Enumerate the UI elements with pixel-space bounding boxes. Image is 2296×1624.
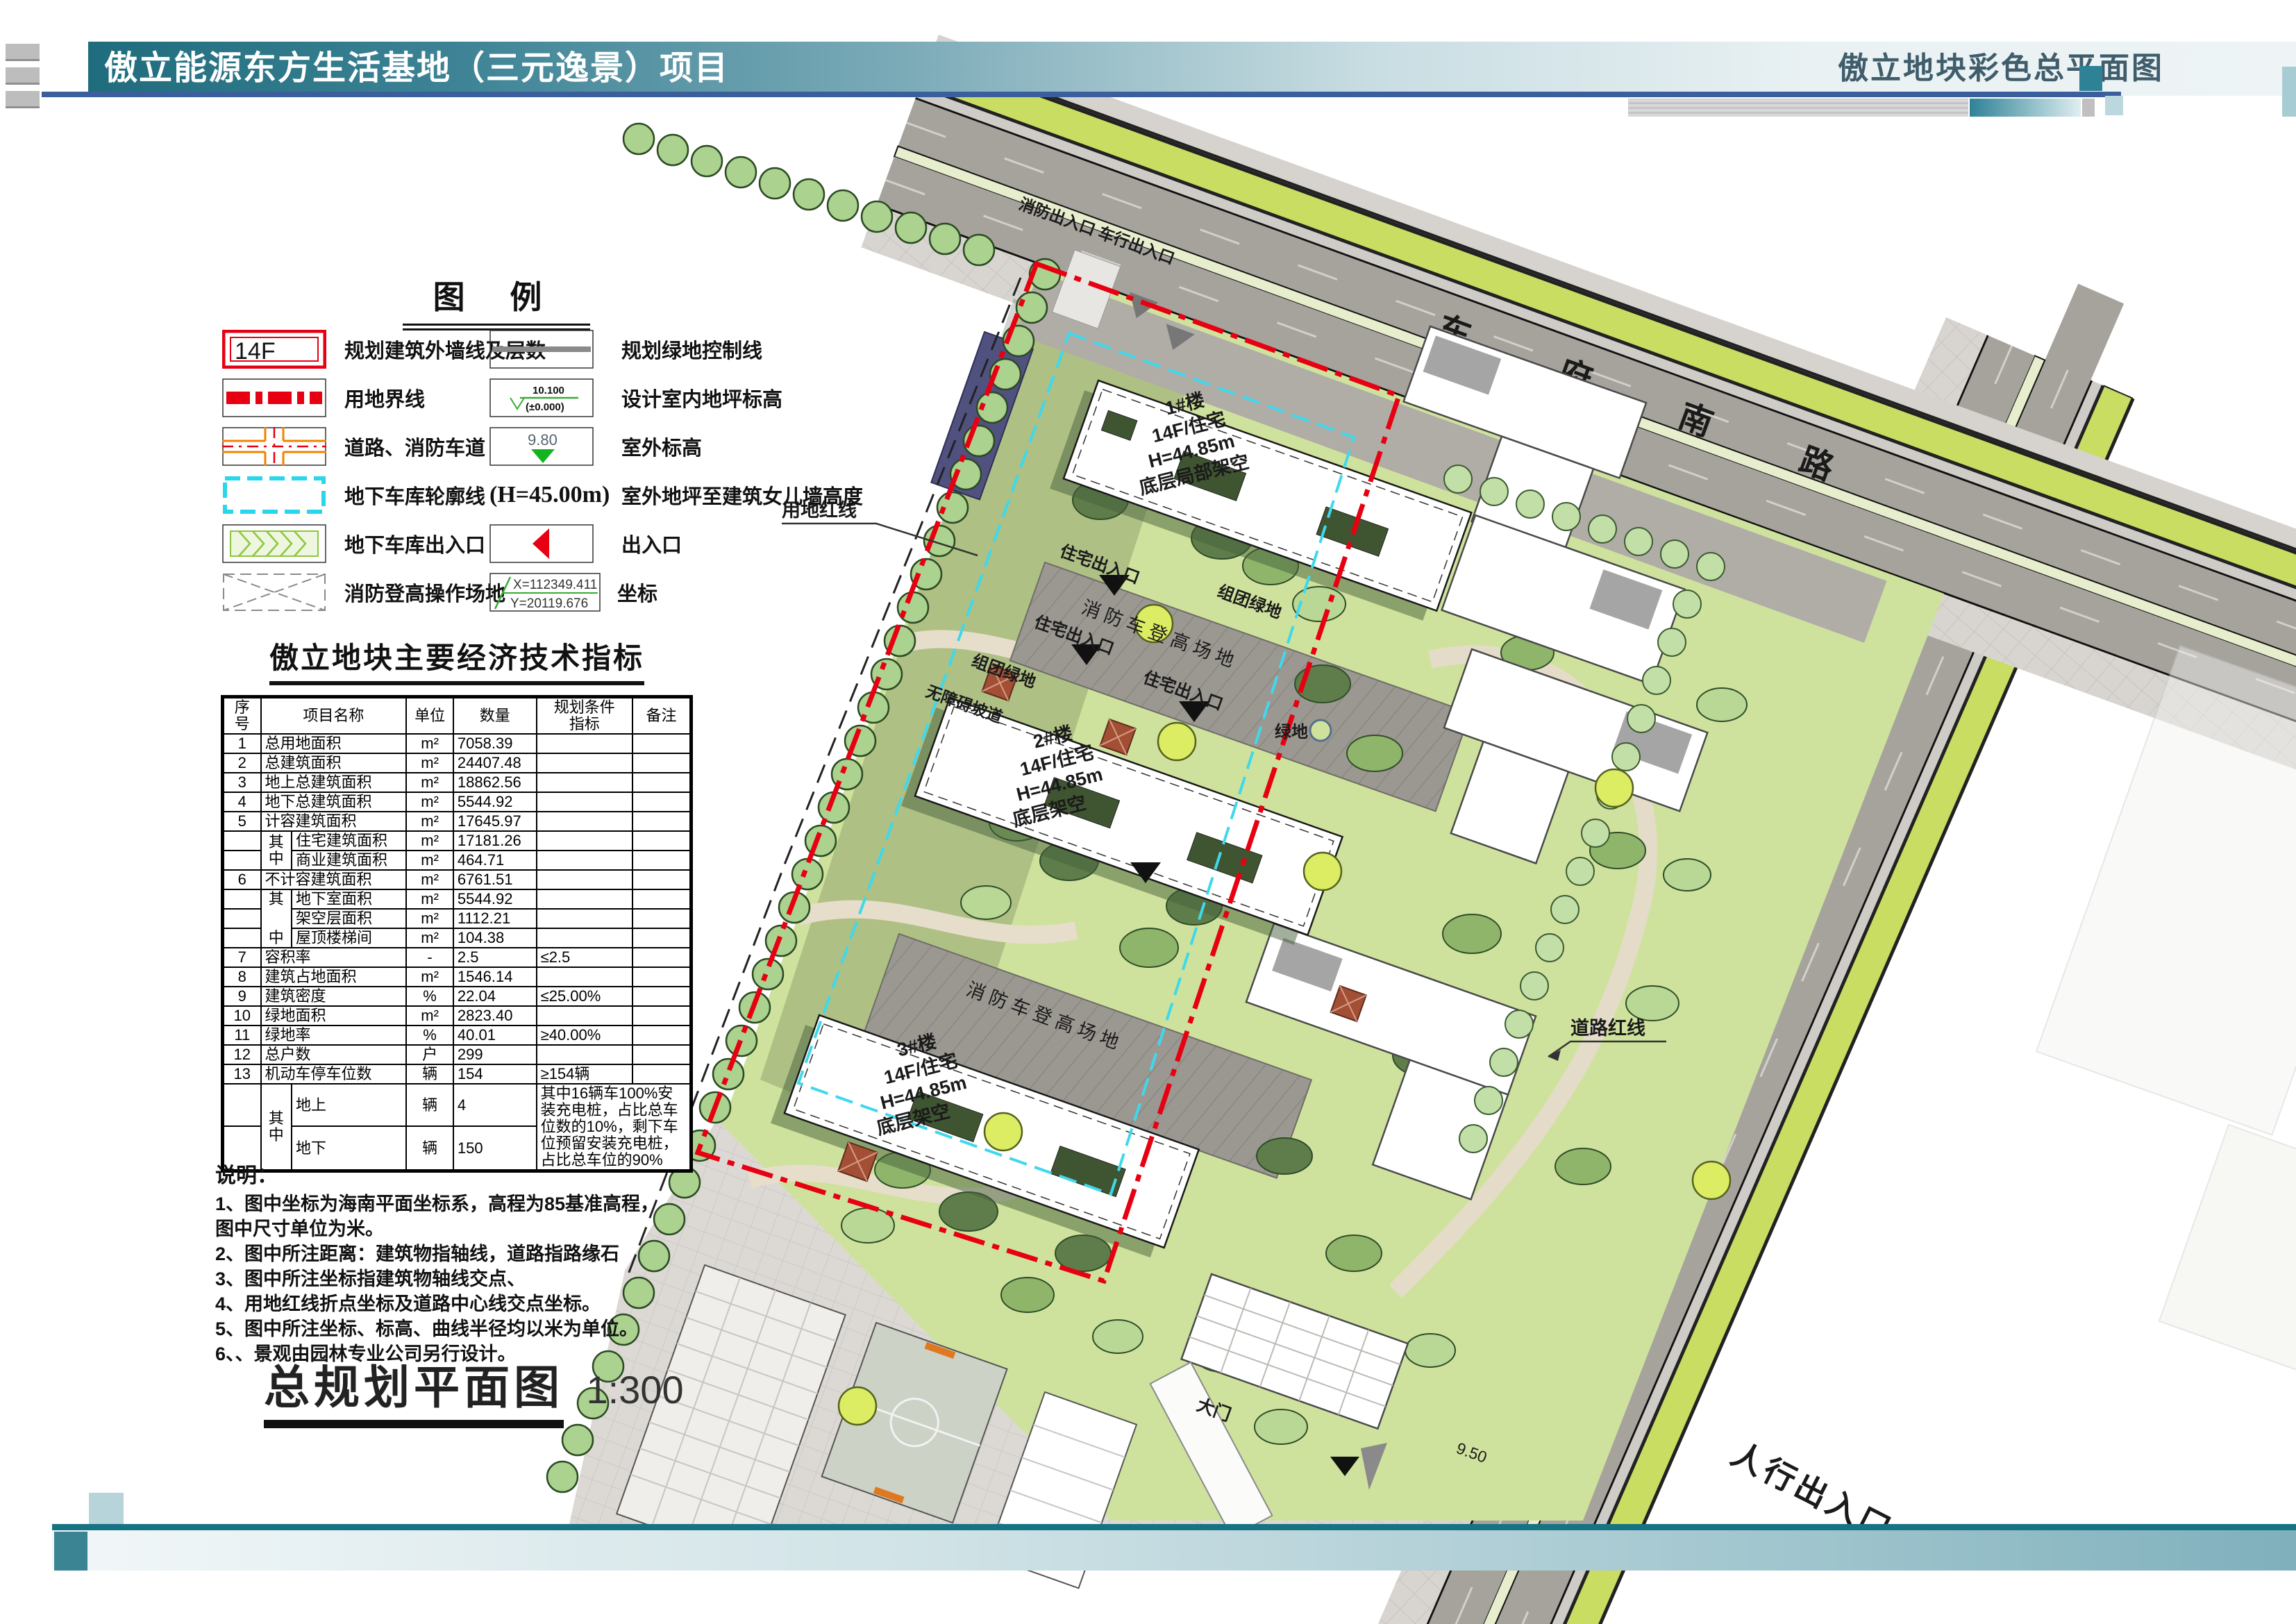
note-item: 5、图中所注坐标、标高、曲线半径均以米为单位。 — [215, 1316, 673, 1341]
header-teal-strip — [1970, 99, 2081, 117]
footer-line — [52, 1524, 2296, 1530]
legend-panel: 图 例 14F 规划建筑外墙线及层数 用地界线 — [208, 272, 854, 633]
legend-item-entrance: 出入口 — [489, 519, 863, 568]
indicators-title: 傲立地块主要经济技术指标 — [269, 635, 644, 685]
footer-band — [52, 1530, 2296, 1571]
notes-title: 说明： — [215, 1158, 673, 1189]
table-row: 7容积率-2.5≤2.5 — [223, 948, 692, 967]
table-row: 其中地上辆4其中16辆车100%安装充电桩，占比总车位数的10%，剩下车位预留安… — [223, 1084, 692, 1126]
drawing-sheet: 东 府 南 路 — [0, 0, 2296, 1624]
table-row: 2总建筑面积m²24407.48 — [223, 753, 692, 773]
corner-decoration — [6, 44, 40, 59]
table-row: 6不计容建筑面积m²6761.51 — [223, 870, 692, 889]
site-boundary-symbol — [222, 378, 326, 417]
table-row: 屋顶楼梯间m²104.38 — [223, 928, 692, 948]
entrance-symbol — [489, 524, 594, 563]
note-item: 2、图中所注距离：建筑物指轴线，道路指路缘石 — [215, 1241, 673, 1266]
table-row: 11绿地率%40.01≥40.00% — [223, 1026, 692, 1045]
svg-text:9.80: 9.80 — [528, 431, 558, 449]
garage-outline-symbol — [222, 476, 326, 514]
note-item: 3、图中所注坐标指建筑物轴线交点、 — [215, 1266, 673, 1291]
svg-text:14F: 14F — [235, 338, 276, 365]
note-item: 4、用地红线折点坐标及道路中心线交点坐标。 — [215, 1291, 673, 1316]
notes-panel: 说明： 1、图中坐标为海南平面坐标系，高程为85基准高程，图中尺寸单位为米。 2… — [215, 1158, 673, 1366]
legend-item-outdoor-elevation: 9.80 室外标高 — [489, 422, 863, 471]
table-row: 1总用地面积m²7058.39 — [223, 734, 692, 753]
indoor-elevation-symbol: 10.100 (±0.000) — [489, 378, 594, 417]
indicators-table: 序号 项目名称 单位 数量 规划条件指标 备注 1总用地面积m²7058.39 … — [221, 695, 693, 1173]
plan-title: 总规划平面图 — [264, 1362, 564, 1428]
plan-title-block: 总规划平面图 1:300 — [264, 1350, 684, 1417]
svg-text:10.100: 10.100 — [533, 385, 564, 396]
table-row: 架空层面积m²1112.21 — [223, 909, 692, 928]
svg-text:X=112349.411: X=112349.411 — [513, 578, 597, 592]
legend-title: 图 例 — [403, 272, 590, 330]
table-row: 商业建筑面积m²464.71 — [223, 851, 692, 870]
plan-scale: 1:300 — [586, 1368, 683, 1412]
note-item: 1、图中坐标为海南平面坐标系，高程为85基准高程，图中尺寸单位为米。 — [215, 1191, 673, 1241]
legend-item-parapet-height: (H=45.00m) 室外地坪至建筑女儿墙高度 — [489, 471, 863, 519]
coordinate-symbol: X=112349.411 Y=20119.676 — [489, 573, 594, 612]
road-red-line-label: 道路红线 — [1570, 1017, 1645, 1039]
parapet-height-symbol: (H=45.00m) — [489, 476, 594, 514]
header-square-decoration — [2079, 66, 2102, 91]
table-row: 13机动车停车位数辆154≥154辆 — [223, 1064, 692, 1084]
table-row: 3地上总建筑面积m²18862.56 — [223, 773, 692, 792]
table-row: 4地下总建筑面积m²5544.92 — [223, 792, 692, 812]
outdoor-elevation-symbol: 9.80 — [489, 427, 594, 466]
garage-entrance-symbol — [222, 524, 326, 563]
green-control-line-symbol — [489, 330, 594, 369]
green-space-label: 绿地 — [1275, 722, 1308, 742]
table-row: 其中地下室面积m²5544.92 — [223, 889, 692, 909]
table-row: 5计容建筑面积m²17645.97 — [223, 812, 692, 831]
header-gray-strip — [1628, 99, 1968, 117]
sheet-title: 傲立地块彩色总平面图 — [1838, 46, 2164, 92]
table-row: 10绿地面积m²2823.40 — [223, 1006, 692, 1026]
table-row: 8建筑占地面积m²1546.14 — [223, 967, 692, 987]
table-row: 9建筑密度%22.04≤25.00% — [223, 987, 692, 1006]
legend-item-coordinate: X=112349.411 Y=20119.676 坐标 — [489, 568, 863, 617]
svg-text:Y=20119.676: Y=20119.676 — [510, 596, 588, 611]
fire-operation-site-symbol — [222, 573, 326, 612]
road-fire-lane-symbol — [222, 427, 326, 466]
indicators-panel: 傲立地块主要经济技术指标 序号 项目名称 单位 数量 规划条件指标 备注 1总用… — [221, 635, 693, 1173]
header-divider-line — [42, 92, 2121, 97]
legend-item-indoor-elevation: 10.100 (±0.000) 设计室内地坪标高 — [489, 374, 863, 422]
footer-square-decoration — [89, 1493, 124, 1524]
page-title: 傲立能源东方生活基地（三元逸景）项目 — [104, 42, 729, 96]
legend-item-green-control-line: 规划绿地控制线 — [489, 325, 863, 374]
svg-text:(±0.000): (±0.000) — [526, 401, 564, 413]
table-row: 12总户数户299 — [223, 1045, 692, 1064]
table-row: 其中住宅建筑面积m²17181.26 — [223, 831, 692, 851]
table-header-row: 序号 项目名称 单位 数量 规划条件指标 备注 — [223, 697, 692, 735]
building-outline-symbol: 14F — [222, 330, 326, 369]
